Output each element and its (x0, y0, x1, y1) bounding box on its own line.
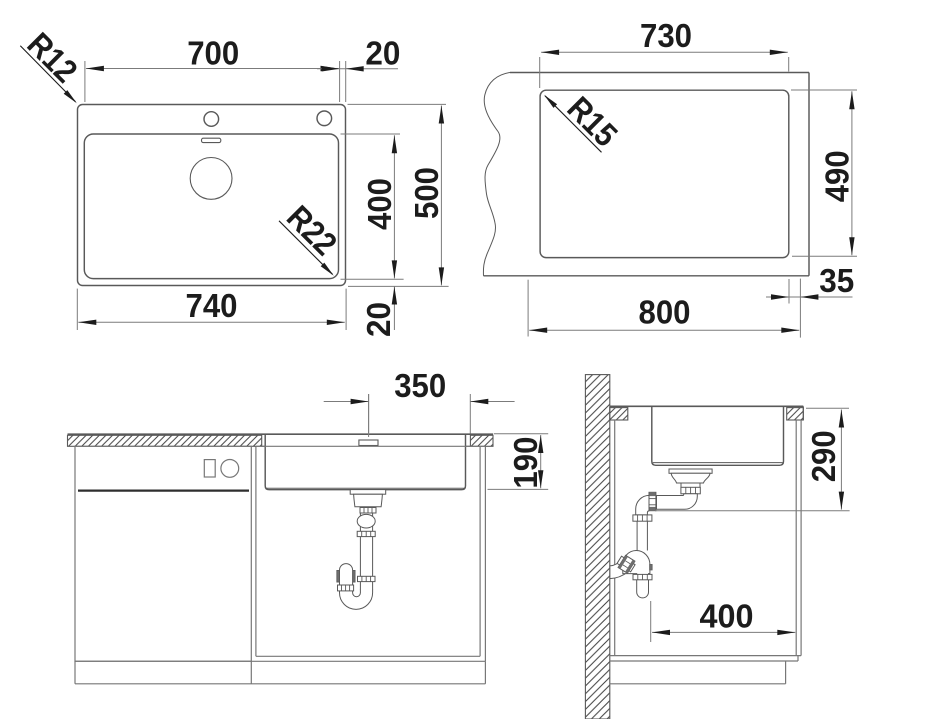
svg-text:740: 740 (186, 287, 238, 324)
svg-text:20: 20 (365, 34, 400, 71)
svg-text:800: 800 (639, 294, 691, 331)
svg-text:700: 700 (187, 34, 239, 71)
svg-text:500: 500 (408, 167, 445, 219)
svg-text:35: 35 (819, 262, 854, 299)
svg-text:R12: R12 (20, 25, 84, 89)
svg-text:290: 290 (805, 430, 842, 482)
svg-text:400: 400 (361, 178, 398, 230)
svg-text:190: 190 (507, 437, 544, 489)
svg-text:490: 490 (818, 150, 855, 202)
svg-text:730: 730 (640, 17, 692, 54)
svg-text:350: 350 (394, 367, 446, 404)
svg-text:400: 400 (700, 598, 754, 635)
svg-text:20: 20 (360, 302, 397, 337)
